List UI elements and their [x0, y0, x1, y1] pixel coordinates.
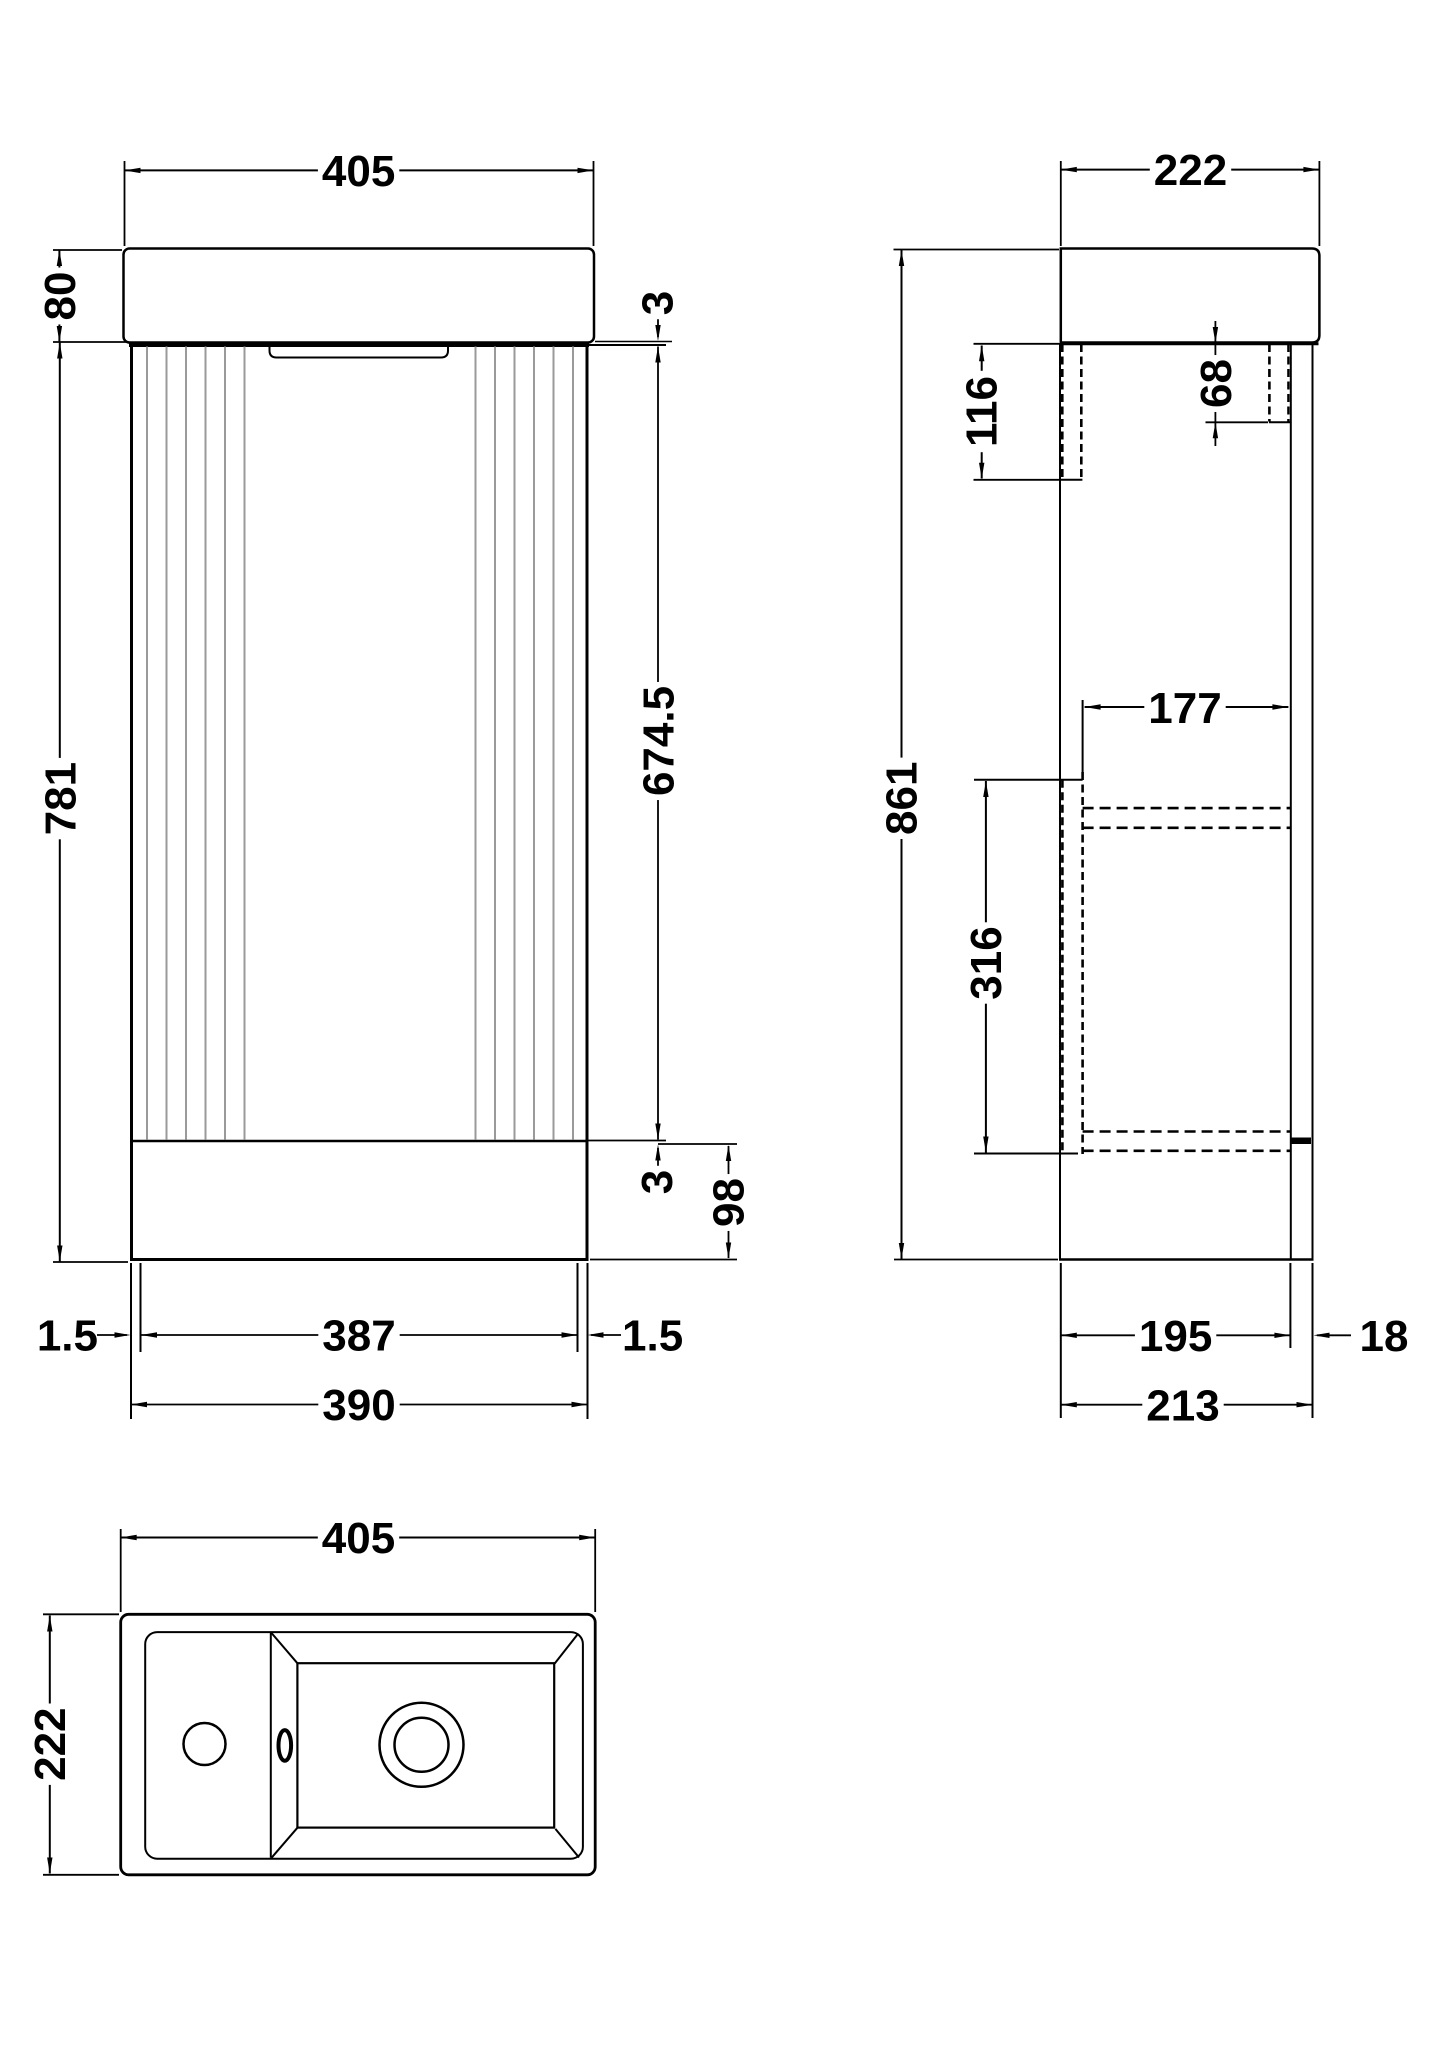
svg-text:1.5: 1.5	[37, 1312, 98, 1361]
svg-text:98: 98	[705, 1178, 754, 1227]
svg-text:405: 405	[322, 1514, 395, 1563]
svg-text:116: 116	[958, 376, 1007, 447]
svg-text:781: 781	[36, 762, 85, 835]
svg-text:674.5: 674.5	[635, 686, 684, 796]
svg-text:387: 387	[322, 1312, 395, 1361]
svg-text:222: 222	[26, 1707, 75, 1780]
svg-text:3: 3	[634, 291, 683, 315]
svg-text:18: 18	[1360, 1312, 1409, 1361]
svg-text:213: 213	[1146, 1381, 1219, 1430]
svg-text:3: 3	[633, 1170, 682, 1194]
svg-text:390: 390	[322, 1381, 395, 1430]
svg-text:195: 195	[1139, 1312, 1212, 1361]
svg-text:405: 405	[322, 147, 395, 196]
svg-text:316: 316	[962, 926, 1011, 999]
svg-text:80: 80	[36, 272, 85, 321]
svg-text:222: 222	[1154, 146, 1227, 195]
svg-text:1.5: 1.5	[622, 1312, 683, 1361]
svg-text:68: 68	[1192, 359, 1241, 408]
svg-text:861: 861	[878, 762, 927, 835]
svg-text:177: 177	[1148, 684, 1221, 733]
